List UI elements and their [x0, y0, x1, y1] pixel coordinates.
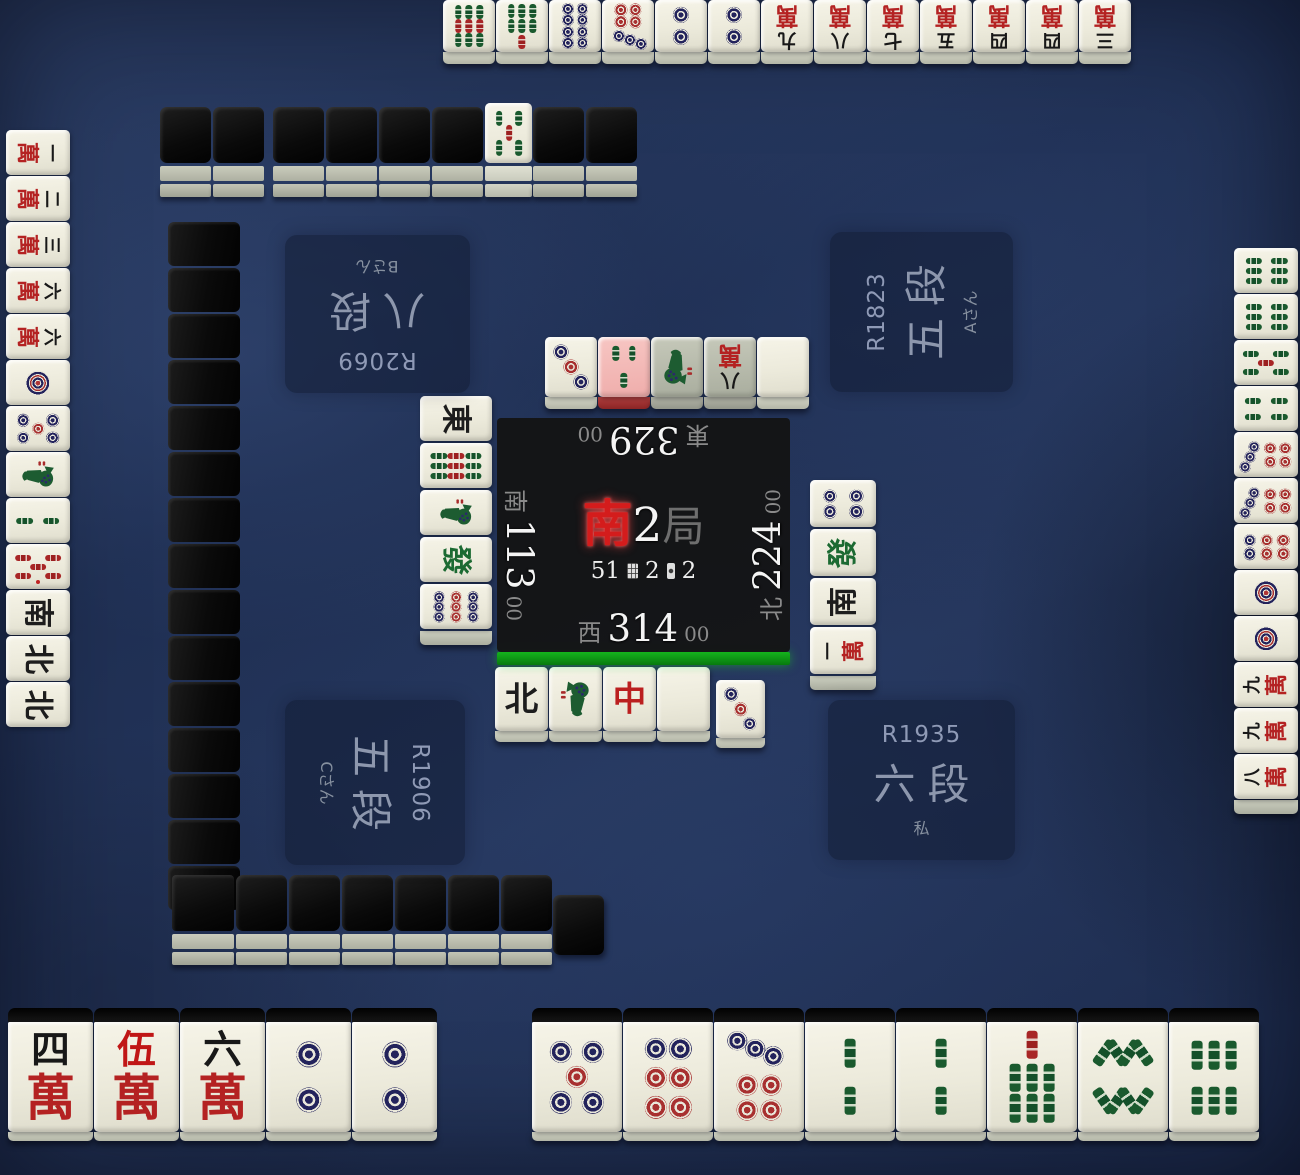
tile-face: 南 — [810, 578, 876, 625]
tile-face: 三萬 — [1079, 0, 1131, 52]
tile-side-edge — [598, 397, 650, 409]
player-name-self: 私 — [913, 815, 929, 839]
round-status-line: 51 2 2 — [497, 558, 790, 584]
tile-chun: 中 — [603, 667, 656, 742]
player-name-left: Cさん — [317, 761, 341, 804]
tile-face — [420, 443, 492, 488]
center-info-panel: 東 329 00 南 113 00 北 224 00 南2局 51 2 — [497, 418, 790, 652]
tile-2s — [6, 498, 70, 543]
tile-hatsu: 發 — [810, 529, 876, 576]
tile-side-edge — [352, 1132, 437, 1141]
tile-5s — [1234, 340, 1298, 385]
discards-bottom-extra — [716, 680, 765, 748]
tile-8m: 八萬 — [704, 337, 756, 409]
tile-1s — [549, 667, 602, 742]
tile-face — [443, 0, 495, 52]
tile-6m: 六萬 — [6, 268, 70, 313]
tile-side-edge — [94, 1132, 179, 1141]
tile-top-edge — [714, 1008, 804, 1022]
tile-side-edge — [532, 1132, 622, 1141]
tile-9s — [420, 443, 492, 488]
wall-tile-back — [168, 498, 240, 542]
wall-tile-back — [168, 590, 240, 634]
tile-4m: 四萬 — [1026, 0, 1078, 64]
tile-face — [6, 406, 70, 451]
tile-face — [598, 337, 650, 397]
tile-7m: 七萬 — [867, 0, 919, 64]
player-rank-top: 八段 — [317, 283, 425, 344]
wall-tile-back — [432, 107, 483, 197]
tile-8m: 八萬 — [814, 0, 866, 64]
tile-face — [420, 490, 492, 535]
tile-top-edge — [8, 1008, 93, 1022]
tile-9p — [420, 584, 492, 629]
tile-top-edge — [266, 1008, 351, 1022]
tile-face — [6, 452, 70, 497]
wall-tile-back — [168, 406, 240, 450]
tile-top-edge — [623, 1008, 713, 1022]
tile-1m: 一萬 — [6, 130, 70, 175]
tile-face — [545, 337, 597, 397]
tile-side-edge — [814, 52, 866, 64]
tile-7p — [602, 0, 654, 64]
discards-bottom-player: 北中 — [495, 667, 710, 742]
wall-top-segment-c — [533, 107, 637, 197]
tile-side-edge — [708, 52, 760, 64]
tile-side-edge — [761, 52, 813, 64]
wall-tile-back — [168, 314, 240, 358]
tile-face: 北 — [6, 682, 70, 727]
wall-tile-back — [379, 107, 430, 197]
tile-2p — [708, 0, 760, 64]
wall-tile-back — [168, 636, 240, 680]
tile-3m: 三萬 — [6, 222, 70, 267]
wall-top-segment-a — [160, 107, 264, 197]
tile-face: 發 — [810, 529, 876, 576]
wall-tile-back — [533, 107, 584, 197]
tile-2p[interactable] — [266, 1008, 351, 1141]
tile-side-edge — [920, 52, 972, 64]
tile-face: 八萬 — [704, 337, 756, 397]
tile-face — [549, 0, 601, 52]
tile-side-edge — [896, 1132, 986, 1141]
tile-side-edge — [1026, 52, 1078, 64]
tile-side-edge — [1169, 1132, 1259, 1141]
tile-9m: 九萬 — [1234, 708, 1298, 753]
tile-face: 六萬 — [180, 1022, 265, 1132]
tile-face: 八萬 — [814, 0, 866, 52]
tile-face: 一萬 — [6, 130, 70, 175]
tile-face: 四萬 — [973, 0, 1025, 52]
tile-0m[interactable]: 伍萬 — [94, 1008, 179, 1141]
tile-9m: 九萬 — [761, 0, 813, 64]
tile-6s — [1234, 294, 1298, 339]
wall-bottom-end-tile — [553, 895, 604, 955]
round-wind: 南 — [583, 494, 633, 553]
tile-face — [657, 667, 710, 731]
tile-2s[interactable] — [896, 1008, 986, 1141]
tile-side-edge — [495, 731, 548, 742]
tile-face — [1234, 524, 1298, 569]
my-hand-group-right — [532, 1008, 1259, 1141]
tile-1p — [1234, 570, 1298, 615]
tile-1s — [420, 490, 492, 535]
tile-face: 九萬 — [1234, 708, 1298, 753]
tile-7p — [1234, 432, 1298, 477]
tile-haku — [757, 337, 809, 409]
score-value-bottom: 314 — [607, 607, 678, 650]
discards-right-player: 發南一萬 — [810, 480, 876, 690]
score-value-top: 329 — [609, 418, 680, 461]
round-number: 2 — [633, 498, 663, 553]
tile-face — [896, 1022, 986, 1132]
tile-top-edge — [805, 1008, 895, 1022]
tile-face: 四萬 — [8, 1022, 93, 1132]
wall-tile-back — [172, 875, 234, 965]
tile-face — [708, 0, 760, 52]
tile-7s[interactable] — [987, 1008, 1077, 1141]
tile-face — [987, 1022, 1077, 1132]
tile-top-edge — [1078, 1008, 1168, 1022]
discards-left-side-edge — [420, 631, 492, 645]
tile-0s — [6, 544, 70, 589]
tile-face — [6, 544, 70, 589]
tile-face — [757, 337, 809, 397]
tile-face: 北 — [6, 636, 70, 681]
wall-left — [168, 222, 240, 912]
wall-tile-back — [501, 875, 552, 965]
tile-face — [6, 498, 70, 543]
tile-5p[interactable] — [532, 1008, 622, 1141]
player-rate-right: R1823 — [863, 272, 889, 352]
tile-face — [420, 584, 492, 629]
score-bottom-player: 西 314 00 — [497, 607, 790, 650]
wall-tile-back — [586, 107, 637, 197]
tile-N: 北 — [6, 682, 70, 727]
player-info-left: R1906 五段 Cさん — [285, 700, 465, 865]
tile-face — [810, 480, 876, 527]
tile-4m: 四萬 — [973, 0, 1025, 64]
wall-bottom — [172, 875, 552, 965]
tile-face — [496, 0, 548, 52]
tile-1s — [6, 452, 70, 497]
tile-5m: 五萬 — [920, 0, 972, 64]
wall-tile-back — [395, 875, 446, 965]
tile-face: 七萬 — [867, 0, 919, 52]
round-unit: 局 — [662, 502, 704, 551]
wall-tile-back — [168, 222, 240, 266]
tile-side-edge — [603, 731, 656, 742]
tile-side-edge — [8, 1132, 93, 1141]
tile-side-edge — [657, 731, 710, 742]
hand-right-player: 九萬九萬八萬 — [1234, 248, 1298, 814]
tile-2s[interactable] — [805, 1008, 895, 1141]
tile-side-edge — [545, 397, 597, 409]
tile-face: 五萬 — [920, 0, 972, 52]
wall-tile-back — [168, 268, 240, 312]
wall-tile-back — [273, 107, 324, 197]
discards-left-player: 東發 — [420, 396, 492, 645]
mahjong-table: 九萬八萬七萬五萬四萬四萬三萬 一萬二萬三萬六萬六萬南北北 九萬九萬八萬 八萬 東… — [0, 0, 1300, 1175]
tile-7s — [496, 0, 548, 64]
tile-6p — [1234, 524, 1298, 569]
seat-wind-top: 東 — [686, 420, 710, 455]
tile-top-edge — [94, 1008, 179, 1022]
riichi-stick-icon — [667, 563, 675, 579]
tile-face: 東 — [420, 396, 492, 441]
score-pad-bottom: 00 — [684, 622, 709, 646]
riichi-stick-count: 2 — [682, 558, 697, 584]
wall-tile-back — [168, 452, 240, 496]
tile-top-edge — [987, 1008, 1077, 1022]
tile-face — [602, 0, 654, 52]
hand-right-side-edge — [1234, 800, 1298, 814]
seat-wind-bottom: 西 — [577, 613, 601, 648]
tile-side-edge — [602, 52, 654, 64]
active-turn-indicator — [497, 652, 790, 665]
wall-tile-back — [289, 875, 340, 965]
tile-hatsu: 發 — [420, 537, 492, 582]
tile-N: 北 — [495, 667, 548, 742]
tile-face — [1234, 616, 1298, 661]
tile-face — [352, 1022, 437, 1132]
tile-6s[interactable] — [1169, 1008, 1259, 1141]
player-rank-self: 六段 — [873, 751, 981, 812]
tile-5p — [6, 406, 70, 451]
tile-side-edge — [655, 52, 707, 64]
tile-4s — [1234, 386, 1298, 431]
tile-8p — [549, 0, 601, 64]
tile-top-edge — [180, 1008, 265, 1022]
player-info-self: R1935 六段 私 — [828, 700, 1015, 860]
tile-face — [1169, 1022, 1259, 1132]
player-rate-self: R1935 — [882, 722, 962, 748]
player-rate-top: R2069 — [338, 347, 418, 373]
tile-face: 四萬 — [1026, 0, 1078, 52]
tile-side-edge — [805, 1132, 895, 1141]
tile-face — [714, 1022, 804, 1132]
player-rate-left: R1906 — [408, 743, 434, 823]
tile-face — [1234, 432, 1298, 477]
tile-face — [623, 1022, 713, 1132]
wall-tile-back — [168, 728, 240, 772]
discards-top-player: 八萬 — [545, 337, 809, 409]
tile-8s[interactable] — [1078, 1008, 1168, 1141]
tile-S: 南 — [6, 590, 70, 635]
tile-face — [549, 667, 602, 731]
tile-side-edge — [987, 1132, 1077, 1141]
tile-E: 東 — [420, 396, 492, 441]
tile-side-edge — [180, 1132, 265, 1141]
tile-face: 六萬 — [6, 314, 70, 359]
wall-tile-back — [168, 682, 240, 726]
round-indicator: 南2局 — [497, 484, 790, 556]
tile-face — [1234, 294, 1298, 339]
wall-tile-back — [342, 875, 393, 965]
tile-face — [655, 0, 707, 52]
tile-1m: 一萬 — [810, 627, 876, 674]
tile-side-edge — [549, 731, 602, 742]
tile-2m: 二萬 — [6, 176, 70, 221]
tile-3p — [545, 337, 597, 409]
tile-face — [1234, 570, 1298, 615]
tile-2p — [655, 0, 707, 64]
tile-face: 北 — [495, 667, 548, 731]
tile-face: 南 — [6, 590, 70, 635]
tile-face — [805, 1022, 895, 1132]
wall-top-segment-b — [273, 107, 483, 197]
hand-left-player: 一萬二萬三萬六萬六萬南北北 — [6, 130, 70, 727]
tile-face: 八萬 — [1234, 754, 1298, 799]
tile-side-edge — [1079, 52, 1131, 64]
tile-side-edge — [716, 738, 765, 748]
tile-face: 九萬 — [761, 0, 813, 52]
tile-9m: 九萬 — [1234, 662, 1298, 707]
tile-N: 北 — [6, 636, 70, 681]
player-rank-left: 五段 — [344, 734, 405, 842]
player-name-top: Bさん — [356, 256, 399, 280]
tile-4p — [810, 480, 876, 527]
wall-tile-back — [326, 107, 377, 197]
tile-face: 中 — [603, 667, 656, 731]
wall-tile-back — [236, 875, 287, 965]
tile-side-edge — [443, 52, 495, 64]
tile-side-edge — [549, 52, 601, 64]
tile-9s — [443, 0, 495, 64]
tile-side-edge — [1078, 1132, 1168, 1141]
tile-top-edge — [896, 1008, 986, 1022]
tile-side-edge — [651, 397, 703, 409]
tile-face: 一萬 — [810, 627, 876, 674]
wall-tile-back — [213, 107, 264, 197]
tile-6m: 六萬 — [6, 314, 70, 359]
tile-face — [651, 337, 703, 397]
tile-6m[interactable]: 六萬 — [180, 1008, 265, 1141]
wall-tile-back — [448, 875, 499, 965]
tile-face — [532, 1022, 622, 1132]
tile-face: 二萬 — [6, 176, 70, 221]
tile-top-edge — [1169, 1008, 1259, 1022]
tile-1s — [651, 337, 703, 409]
player-name-right: Aさん — [956, 291, 980, 334]
tile-1p — [1234, 616, 1298, 661]
tile-side-edge — [867, 52, 919, 64]
tile-side-edge — [973, 52, 1025, 64]
honba-stick-icon — [627, 563, 638, 579]
honba-count: 2 — [645, 558, 660, 584]
hand-top-player: 九萬八萬七萬五萬四萬四萬三萬 — [443, 0, 1131, 64]
tiles-remaining: 51 — [591, 558, 620, 584]
tile-side-edge — [704, 397, 756, 409]
tile-3m: 三萬 — [1079, 0, 1131, 64]
tile-4m[interactable]: 四萬 — [8, 1008, 93, 1141]
tile-face: 六萬 — [6, 268, 70, 313]
tile-side-edge — [266, 1132, 351, 1141]
tile-5s — [485, 103, 532, 197]
tile-face — [1234, 248, 1298, 293]
tile-7p[interactable] — [714, 1008, 804, 1141]
tile-face — [1234, 340, 1298, 385]
tile-face — [266, 1022, 351, 1132]
tile-face: 三萬 — [6, 222, 70, 267]
wall-tile-back — [168, 820, 240, 864]
tile-8m: 八萬 — [1234, 754, 1298, 799]
tile-side-edge — [714, 1132, 804, 1141]
wall-tile-back — [168, 360, 240, 404]
tile-face — [1234, 478, 1298, 523]
tile-side-edge — [623, 1132, 713, 1141]
tile-face — [1234, 386, 1298, 431]
tile-haku — [657, 667, 710, 742]
tile-2p[interactable] — [352, 1008, 437, 1141]
tile-6s — [1234, 248, 1298, 293]
tile-1p — [6, 360, 70, 405]
discards-right-side-edge — [810, 676, 876, 690]
player-rank-right: 五段 — [892, 252, 953, 360]
wall-tile-back — [168, 774, 240, 818]
tile-side-edge — [496, 52, 548, 64]
dora-indicator-tile — [485, 103, 532, 197]
my-hand-group-left: 四萬伍萬六萬 — [8, 1008, 437, 1141]
wall-tile-back — [168, 544, 240, 588]
tile-3s — [598, 337, 650, 409]
tile-face: 發 — [420, 537, 492, 582]
tile-top-edge — [532, 1008, 622, 1022]
tile-face — [1078, 1022, 1168, 1132]
player-info-top: R2069 八段 Bさん — [285, 235, 470, 393]
tile-face: 九萬 — [1234, 662, 1298, 707]
tile-face — [716, 680, 765, 738]
score-pad-top: 00 — [577, 422, 602, 446]
tile-6p[interactable] — [623, 1008, 713, 1141]
score-top-player: 東 329 00 — [497, 418, 790, 461]
tile-S: 南 — [810, 578, 876, 625]
tile-side-edge — [757, 397, 809, 409]
tile-3p — [716, 680, 765, 748]
tile-face: 伍萬 — [94, 1022, 179, 1132]
player-info-right: R1823 五段 Aさん — [830, 232, 1013, 392]
tile-face — [6, 360, 70, 405]
wall-tile-back — [160, 107, 211, 197]
tile-7p — [1234, 478, 1298, 523]
tile-top-edge — [352, 1008, 437, 1022]
